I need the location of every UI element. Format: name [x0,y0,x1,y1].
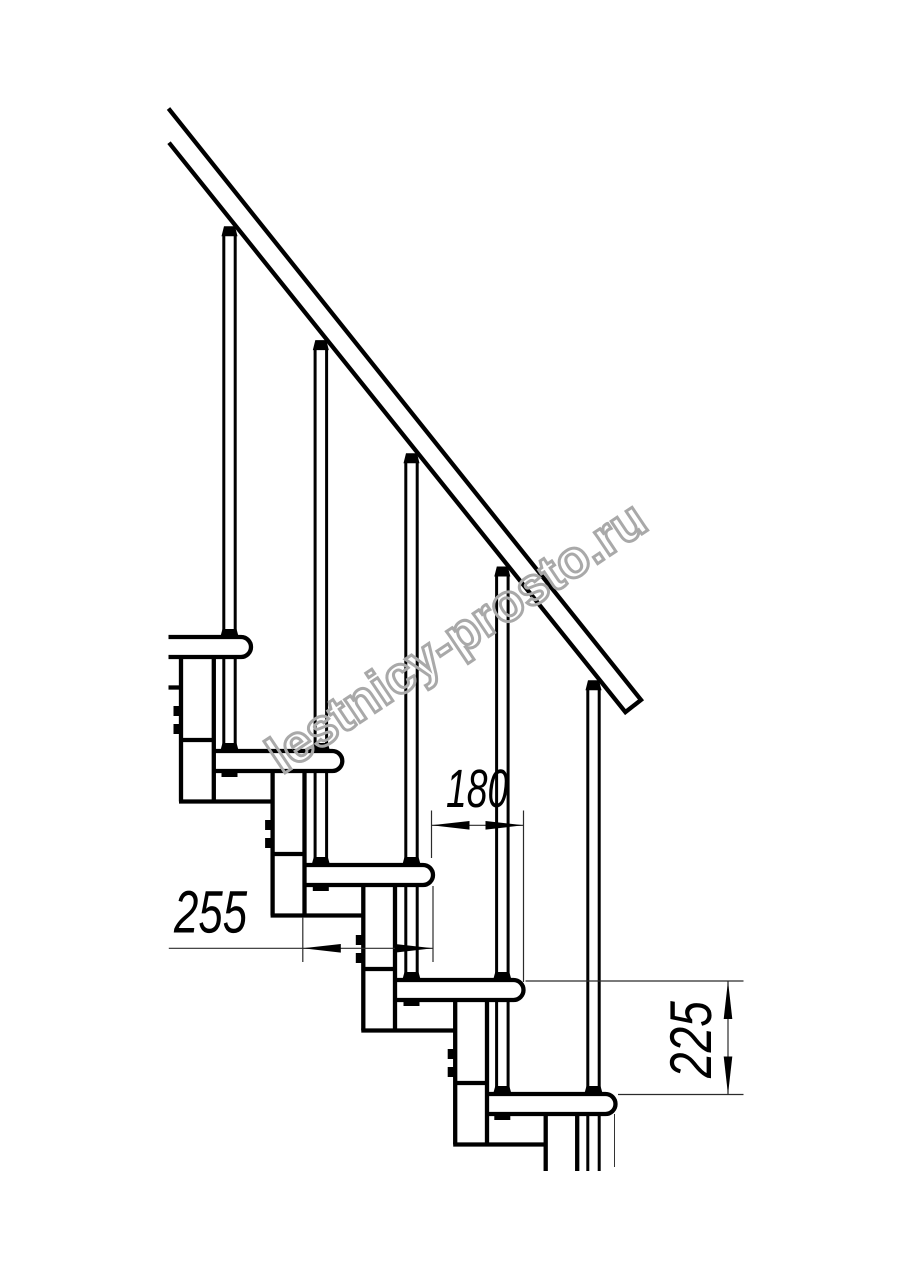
svg-text:255: 255 [173,879,247,946]
svg-text:225: 225 [658,1001,724,1079]
svg-text:180: 180 [446,759,508,819]
